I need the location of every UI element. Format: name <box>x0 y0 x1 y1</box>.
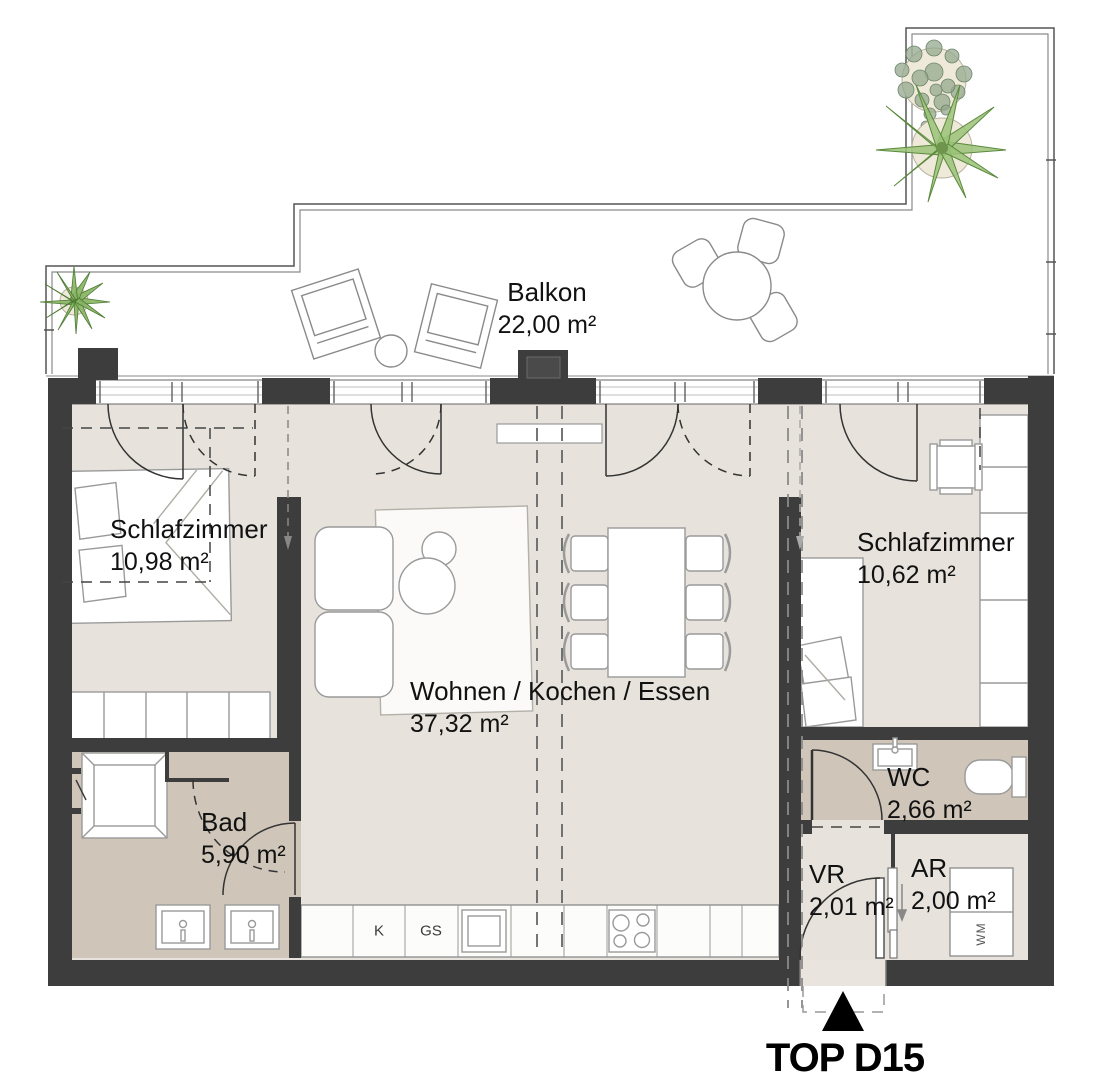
dining-table <box>608 528 685 677</box>
kitchen-dishwasher-label: GS <box>420 923 442 940</box>
kitchen-counter <box>301 905 779 957</box>
room-area: 2,00 m² <box>911 885 996 918</box>
room-area: 5,90 m² <box>201 839 286 872</box>
sideboard <box>497 424 602 443</box>
room-name: AR <box>911 852 996 885</box>
room-label-wohnen: Wohnen / Kochen / Essen 37,32 m² <box>410 675 710 741</box>
dining-chairs-left <box>564 534 608 671</box>
room-label-schlafzimmer-2: Schlafzimmer 10,62 m² <box>857 526 1014 592</box>
room-name: WC <box>887 761 972 794</box>
kitchen-sink <box>462 910 506 952</box>
bathtub <box>82 753 167 838</box>
room-name: Balkon <box>447 276 647 309</box>
room-label-ar: AR 2,00 m² <box>911 852 996 918</box>
room-name: Bad <box>201 806 286 839</box>
wardrobe-bedroom1 <box>63 692 270 740</box>
room-label-bad: Bad 5,90 m² <box>201 806 286 872</box>
kitchen-fridge-label: K <box>374 923 384 940</box>
room-area: 37,32 m² <box>410 708 710 741</box>
room-name: Wohnen / Kochen / Essen <box>410 675 710 708</box>
room-area: 10,62 m² <box>857 559 1014 592</box>
room-area: 22,00 m² <box>447 309 647 342</box>
bed-single <box>793 558 863 727</box>
washing-machine-label: WM <box>974 922 988 945</box>
balcony-dining-set <box>669 216 801 345</box>
stove <box>609 910 655 952</box>
unit-label: TOP D15 <box>745 1036 945 1081</box>
dining-chairs-right <box>686 534 730 671</box>
toilet <box>965 757 1026 797</box>
entry-opening <box>800 960 886 986</box>
balcony-lounge-chair-1 <box>292 269 381 359</box>
room-label-wc: WC 2,66 m² <box>887 761 972 827</box>
floor-plan: Balkon 22,00 m² Schlafzimmer 10,98 m² Wo… <box>0 0 1104 1088</box>
room-label-vr: VR 2,01 m² <box>809 858 894 924</box>
room-name: Schlafzimmer <box>110 513 267 546</box>
balcony-side-table <box>375 335 407 367</box>
plant-icon-left <box>40 266 110 334</box>
sofa <box>315 527 393 697</box>
room-area: 10,98 m² <box>110 546 267 579</box>
room-name: Schlafzimmer <box>857 526 1014 559</box>
dining-table-set <box>564 528 730 677</box>
pillar-inner-detail <box>527 357 560 378</box>
room-label-balkon: Balkon 22,00 m² <box>447 276 647 342</box>
room-label-schlafzimmer-1: Schlafzimmer 10,98 m² <box>110 513 267 579</box>
room-name: VR <box>809 858 894 891</box>
room-area: 2,66 m² <box>887 794 972 827</box>
entrance-triangle <box>822 991 864 1031</box>
room-area: 2,01 m² <box>809 891 894 924</box>
desk-chair <box>930 440 982 494</box>
